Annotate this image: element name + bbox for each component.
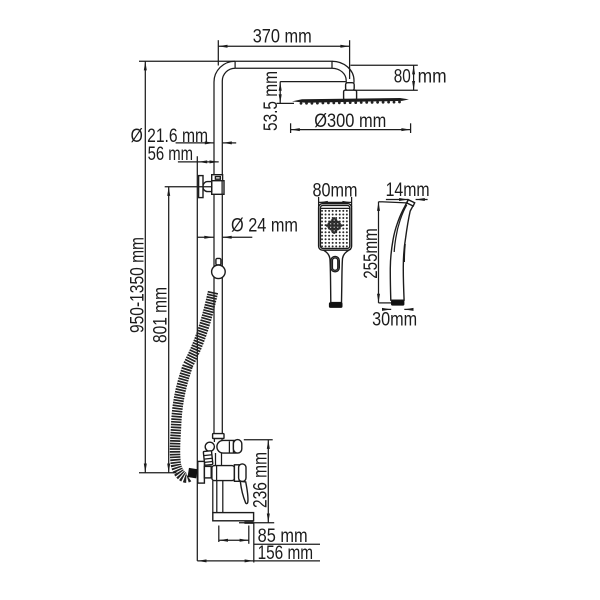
svg-text:mm: mm	[418, 67, 447, 88]
svg-text:801 mm: 801 mm	[150, 287, 171, 343]
svg-text:30mm: 30mm	[372, 309, 417, 330]
svg-text:80: 80	[394, 67, 411, 88]
svg-text:53.5 mm: 53.5 mm	[261, 71, 282, 131]
svg-text:14mm: 14mm	[386, 180, 430, 201]
svg-text:950-1350 mm: 950-1350 mm	[128, 237, 149, 333]
svg-text:156 mm: 156 mm	[258, 543, 314, 564]
svg-text:Ø300 mm: Ø300 mm	[314, 111, 386, 132]
svg-text:255mm: 255mm	[361, 228, 382, 279]
svg-text:236 mm: 236 mm	[251, 452, 272, 508]
svg-text:80mm: 80mm	[313, 180, 358, 201]
svg-text:Ø 24 mm: Ø 24 mm	[231, 216, 298, 237]
svg-text:370 mm: 370 mm	[253, 27, 312, 48]
